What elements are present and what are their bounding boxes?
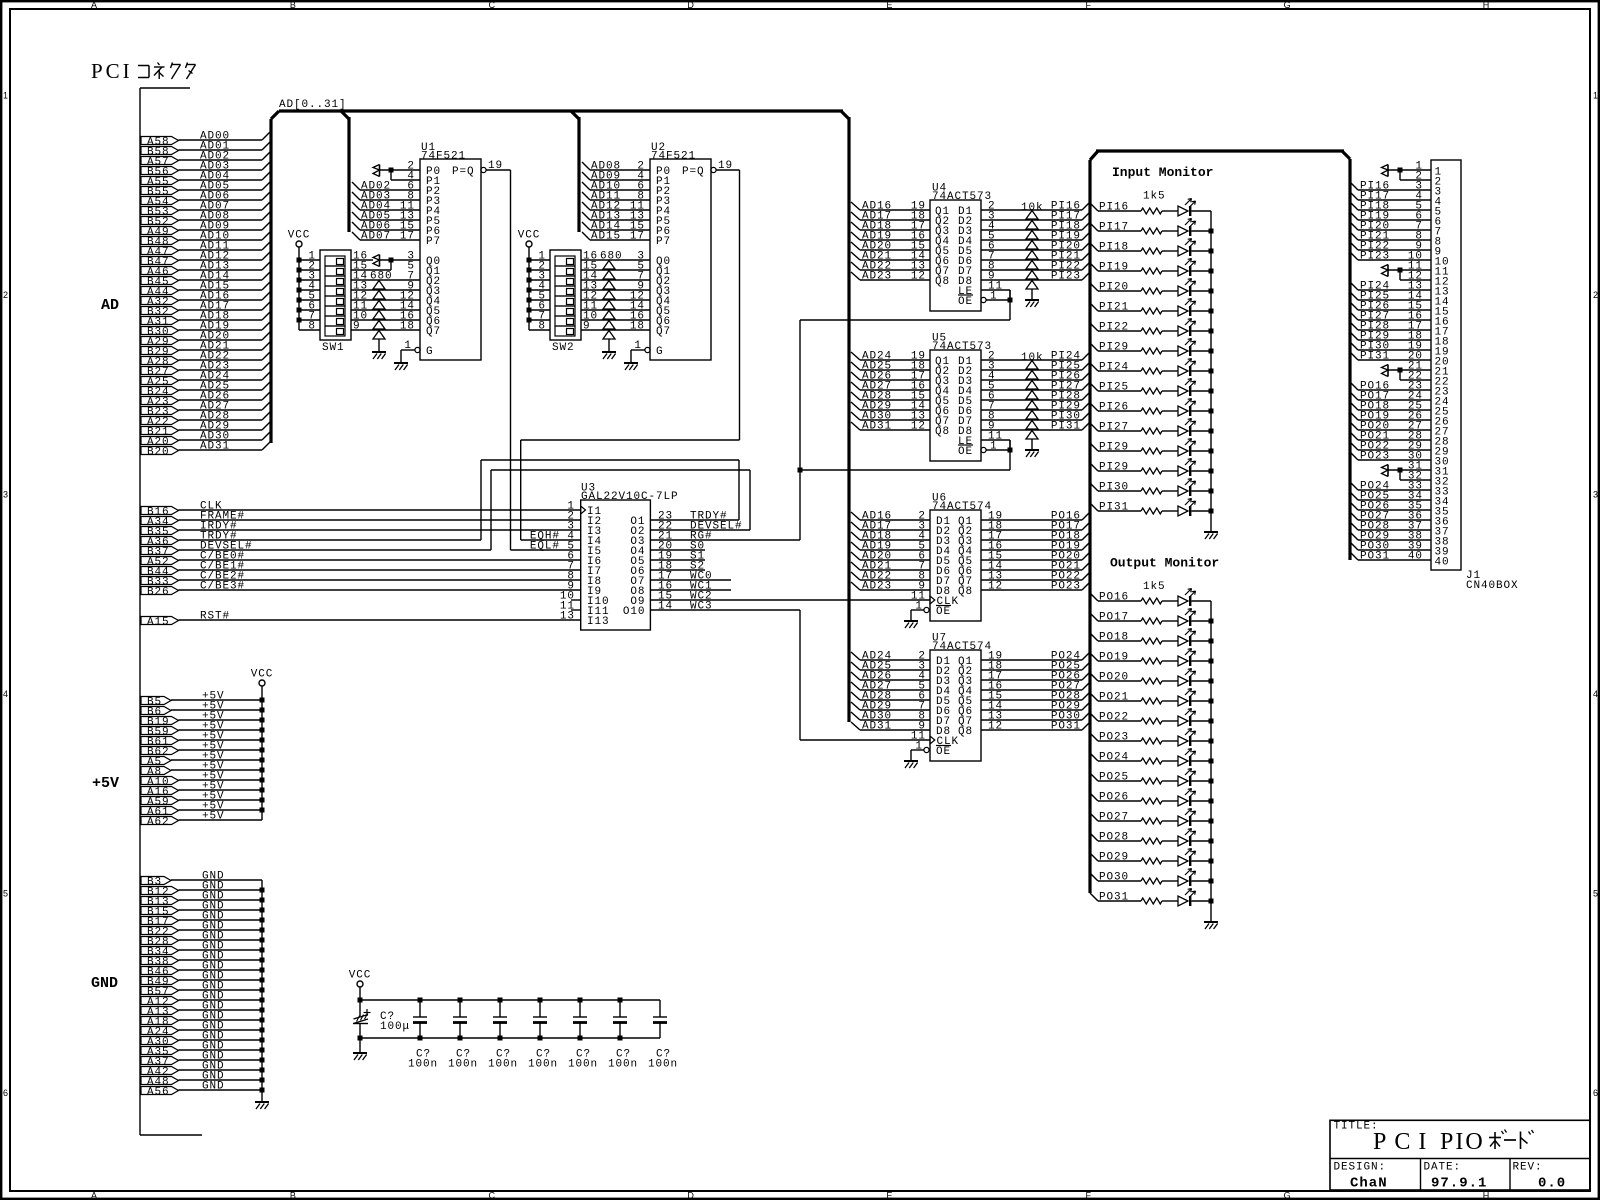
svg-text:E: E xyxy=(886,0,892,10)
svg-text:A62: A62 xyxy=(147,817,170,829)
svg-text:4: 4 xyxy=(3,689,8,699)
svg-text:PCI: PCI xyxy=(91,59,133,83)
svg-text:PI23: PI23 xyxy=(1051,271,1081,283)
svg-text:1: 1 xyxy=(990,291,998,303)
svg-text:10k: 10k xyxy=(1021,202,1044,214)
svg-text:74F521: 74F521 xyxy=(651,151,696,163)
svg-text:12: 12 xyxy=(911,421,926,433)
svg-text:H: H xyxy=(1483,1191,1490,1200)
svg-text:18: 18 xyxy=(630,321,645,333)
svg-text:REV:: REV: xyxy=(1513,1162,1543,1174)
svg-text:PCI: PCI xyxy=(1373,1129,1434,1155)
svg-text:B20: B20 xyxy=(147,447,170,459)
svg-text:100n: 100n xyxy=(568,1059,598,1071)
svg-text:PO31: PO31 xyxy=(1360,551,1390,563)
svg-text:74F521: 74F521 xyxy=(421,151,466,163)
svg-text:A: A xyxy=(91,1191,97,1200)
svg-text:D: D xyxy=(687,0,694,10)
svg-text:5: 5 xyxy=(3,888,8,898)
svg-text:74ACT574: 74ACT574 xyxy=(932,641,992,653)
svg-text:C: C xyxy=(488,1191,495,1200)
svg-text:D: D xyxy=(687,1191,694,1200)
svg-text:6: 6 xyxy=(3,1088,8,1098)
svg-text:VCC: VCC xyxy=(288,230,311,242)
svg-text:PI24: PI24 xyxy=(1099,362,1129,374)
svg-text:F: F xyxy=(1086,1191,1092,1200)
svg-text:3: 3 xyxy=(3,489,8,499)
svg-text:1: 1 xyxy=(990,441,998,453)
svg-text:O10: O10 xyxy=(623,606,646,618)
svg-text:PI31: PI31 xyxy=(1360,351,1390,363)
svg-text:VCC: VCC xyxy=(518,230,541,242)
svg-text:SW2: SW2 xyxy=(552,342,575,354)
svg-text:PI21: PI21 xyxy=(1099,302,1129,314)
svg-text:PO23: PO23 xyxy=(1360,451,1390,463)
svg-text:+5V: +5V xyxy=(92,775,119,792)
svg-text:PIO: PIO xyxy=(1440,1129,1485,1155)
svg-text:PI31: PI31 xyxy=(1051,421,1081,433)
svg-text:AD[0..31]: AD[0..31] xyxy=(279,99,347,111)
svg-text:PI26: PI26 xyxy=(1099,402,1129,414)
svg-text:P=Q: P=Q xyxy=(682,166,705,178)
svg-text:Q8: Q8 xyxy=(935,426,950,438)
svg-text:74ACT573: 74ACT573 xyxy=(932,191,992,203)
svg-text:GND: GND xyxy=(91,975,118,992)
svg-text:A56: A56 xyxy=(147,1087,170,1099)
svg-text:97.9.1: 97.9.1 xyxy=(1431,1176,1487,1192)
svg-text:5: 5 xyxy=(1593,888,1598,898)
svg-text:A: A xyxy=(91,0,97,10)
svg-text:0.0: 0.0 xyxy=(1538,1176,1566,1192)
svg-text:OE: OE xyxy=(958,446,973,458)
svg-text:13: 13 xyxy=(560,611,575,623)
svg-text:3: 3 xyxy=(1593,489,1598,499)
svg-text:P=Q: P=Q xyxy=(452,166,475,178)
svg-text:P7: P7 xyxy=(426,236,441,248)
svg-text:Output Monitor: Output Monitor xyxy=(1110,556,1219,571)
svg-text:OE: OE xyxy=(958,296,973,308)
svg-text:40: 40 xyxy=(1435,557,1450,569)
svg-text:9: 9 xyxy=(583,321,591,333)
svg-text:ChaN: ChaN xyxy=(1350,1176,1388,1192)
svg-text:CN40BOX: CN40BOX xyxy=(1466,580,1519,592)
svg-text:4: 4 xyxy=(1593,689,1598,699)
svg-text:EQH#: EQH# xyxy=(530,531,560,543)
svg-text:SW1: SW1 xyxy=(322,342,345,354)
svg-text:74ACT574: 74ACT574 xyxy=(932,501,992,513)
svg-text:G: G xyxy=(1284,1191,1291,1200)
svg-text:10k: 10k xyxy=(1021,352,1044,364)
svg-text:I13: I13 xyxy=(587,616,610,628)
svg-text:Q8: Q8 xyxy=(935,276,950,288)
svg-text:PI29: PI29 xyxy=(1099,462,1129,474)
svg-text:AD31: AD31 xyxy=(200,441,230,453)
svg-text:AD31: AD31 xyxy=(862,721,892,733)
svg-text:9: 9 xyxy=(353,321,361,333)
svg-text:VCC: VCC xyxy=(251,669,274,681)
svg-text:100μ: 100μ xyxy=(380,1021,410,1033)
svg-text:100n: 100n xyxy=(408,1059,438,1071)
svg-text:680: 680 xyxy=(370,271,393,283)
svg-text:Q7: Q7 xyxy=(426,326,441,338)
svg-text:1: 1 xyxy=(1593,90,1598,100)
svg-text:TITLE:: TITLE: xyxy=(1334,1121,1379,1133)
svg-text:100n: 100n xyxy=(528,1059,558,1071)
svg-text:100n: 100n xyxy=(448,1059,478,1071)
svg-text:AD31: AD31 xyxy=(862,421,892,433)
svg-text:G: G xyxy=(1284,0,1291,10)
svg-text:VCC: VCC xyxy=(349,970,372,982)
svg-text:Q8: Q8 xyxy=(958,586,973,598)
svg-text:18: 18 xyxy=(400,321,415,333)
svg-text:AD23: AD23 xyxy=(862,581,892,593)
svg-text:100n: 100n xyxy=(608,1059,638,1071)
svg-text:PI29: PI29 xyxy=(1099,442,1129,454)
svg-text:A15: A15 xyxy=(147,617,170,629)
svg-text:1k5: 1k5 xyxy=(1143,191,1166,203)
svg-text:F: F xyxy=(1086,0,1092,10)
svg-text:74ACT573: 74ACT573 xyxy=(932,341,992,353)
svg-text:12: 12 xyxy=(911,271,926,283)
svg-text:PO23: PO23 xyxy=(1051,581,1081,593)
svg-text:B: B xyxy=(290,0,296,10)
svg-text:1k5: 1k5 xyxy=(1143,581,1166,593)
svg-text:680: 680 xyxy=(600,251,623,263)
svg-text:AD15: AD15 xyxy=(591,231,621,243)
svg-text:100n: 100n xyxy=(648,1059,678,1071)
svg-text:PI31: PI31 xyxy=(1099,502,1129,514)
svg-text:AD: AD xyxy=(101,297,119,314)
svg-text:G: G xyxy=(656,346,664,358)
svg-text:8: 8 xyxy=(308,321,316,333)
svg-text:G: G xyxy=(426,346,434,358)
svg-text:E: E xyxy=(886,1191,892,1200)
svg-text:PI20: PI20 xyxy=(1099,282,1129,294)
svg-text:6: 6 xyxy=(1593,1088,1598,1098)
svg-text:2: 2 xyxy=(3,290,8,300)
svg-text:H: H xyxy=(1483,0,1490,10)
svg-text:Input Monitor: Input Monitor xyxy=(1112,165,1213,180)
svg-text:PI29: PI29 xyxy=(1099,342,1129,354)
svg-text:PO31: PO31 xyxy=(1051,721,1081,733)
svg-text:PI27: PI27 xyxy=(1099,422,1129,434)
svg-text:GAL22V10C-7LP: GAL22V10C-7LP xyxy=(581,491,679,503)
svg-text:2: 2 xyxy=(1593,290,1598,300)
svg-text:8: 8 xyxy=(538,321,546,333)
svg-text:100n: 100n xyxy=(488,1059,518,1071)
svg-text:PI23: PI23 xyxy=(1360,251,1390,263)
svg-text:OE: OE xyxy=(936,606,951,618)
svg-text:DESIGN:: DESIGN: xyxy=(1334,1162,1387,1174)
svg-text:OE: OE xyxy=(936,746,951,758)
svg-text:Q8: Q8 xyxy=(958,726,973,738)
svg-text:B26: B26 xyxy=(147,587,170,599)
svg-text:PI19: PI19 xyxy=(1099,262,1129,274)
svg-text:P7: P7 xyxy=(656,236,671,248)
svg-text:B: B xyxy=(290,1191,296,1200)
svg-text:AD23: AD23 xyxy=(862,271,892,283)
svg-text:PI30: PI30 xyxy=(1099,482,1129,494)
svg-text:PI25: PI25 xyxy=(1099,382,1129,394)
svg-text:AD07: AD07 xyxy=(361,231,391,243)
svg-text:C: C xyxy=(488,0,495,10)
svg-text:1: 1 xyxy=(3,90,8,100)
svg-text:PI22: PI22 xyxy=(1099,322,1129,334)
svg-text:DATE:: DATE: xyxy=(1424,1162,1462,1174)
svg-text:Q7: Q7 xyxy=(656,326,671,338)
